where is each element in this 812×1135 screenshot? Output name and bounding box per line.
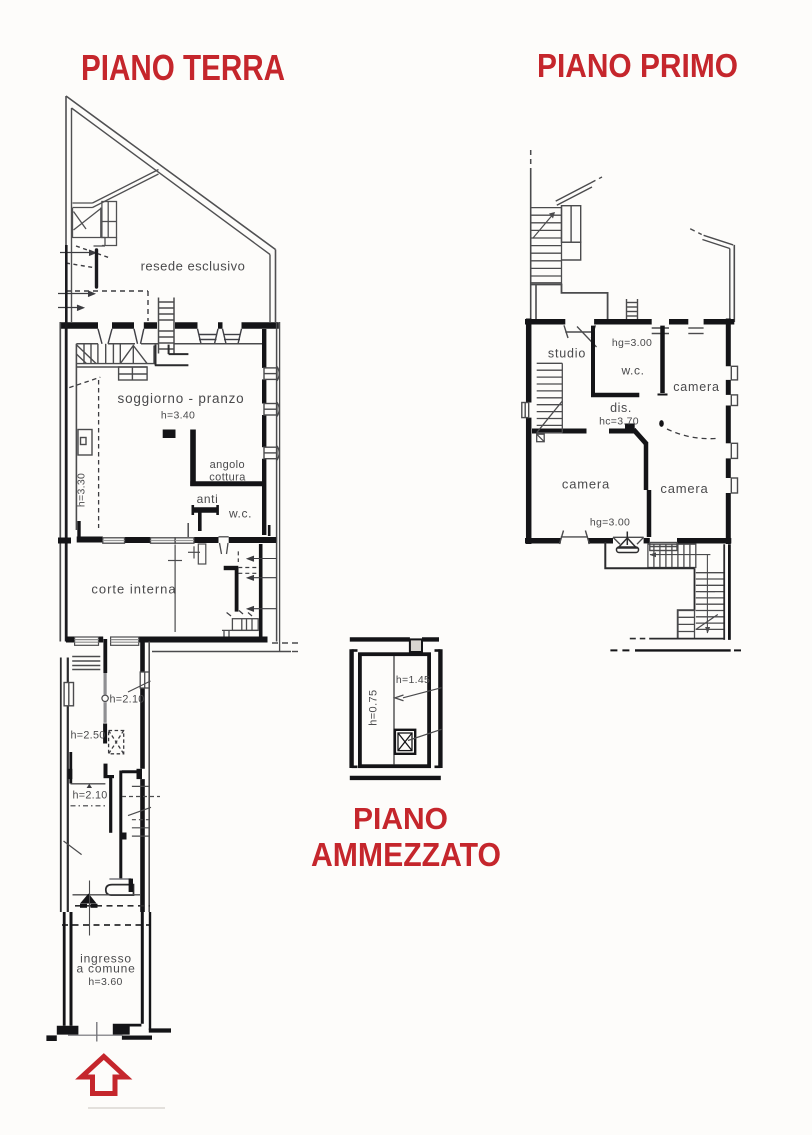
svg-text:h=3.40: h=3.40 <box>161 410 195 422</box>
svg-text:PIANO TERRA: PIANO TERRA <box>81 47 285 88</box>
svg-text:cottura: cottura <box>209 472 246 484</box>
svg-text:h=3.60: h=3.60 <box>88 976 122 988</box>
svg-text:h=1.45: h=1.45 <box>396 674 430 686</box>
svg-text:hc=3.70: hc=3.70 <box>599 416 639 428</box>
svg-text:h=3.30: h=3.30 <box>76 473 88 507</box>
svg-text:w.c.: w.c. <box>228 507 252 521</box>
svg-text:hg=3.00: hg=3.00 <box>612 337 652 349</box>
svg-text:camera: camera <box>660 481 708 496</box>
svg-text:camera: camera <box>673 380 719 394</box>
svg-text:a comune: a comune <box>76 962 135 976</box>
svg-text:PIANO: PIANO <box>353 801 448 836</box>
svg-text:angolo: angolo <box>210 459 245 471</box>
svg-text:studio: studio <box>548 347 586 361</box>
svg-text:anti: anti <box>197 492 219 506</box>
svg-text:soggiorno - pranzo: soggiorno - pranzo <box>118 391 245 406</box>
svg-text:AMMEZZATO: AMMEZZATO <box>311 836 501 873</box>
svg-text:h=2.10: h=2.10 <box>72 790 107 802</box>
svg-text:corte interna: corte interna <box>91 582 176 597</box>
svg-text:camera: camera <box>562 477 610 492</box>
svg-text:resede esclusivo: resede esclusivo <box>141 259 246 274</box>
svg-text:h=2.50: h=2.50 <box>70 730 105 742</box>
svg-text:h=2.10: h=2.10 <box>109 694 144 706</box>
svg-text:dis.: dis. <box>610 401 632 415</box>
svg-text:w.c.: w.c. <box>620 364 644 378</box>
svg-text:PIANO PRIMO: PIANO PRIMO <box>537 47 738 84</box>
svg-text:hg=3.00: hg=3.00 <box>590 517 630 529</box>
svg-text:h=0.75: h=0.75 <box>368 689 380 725</box>
